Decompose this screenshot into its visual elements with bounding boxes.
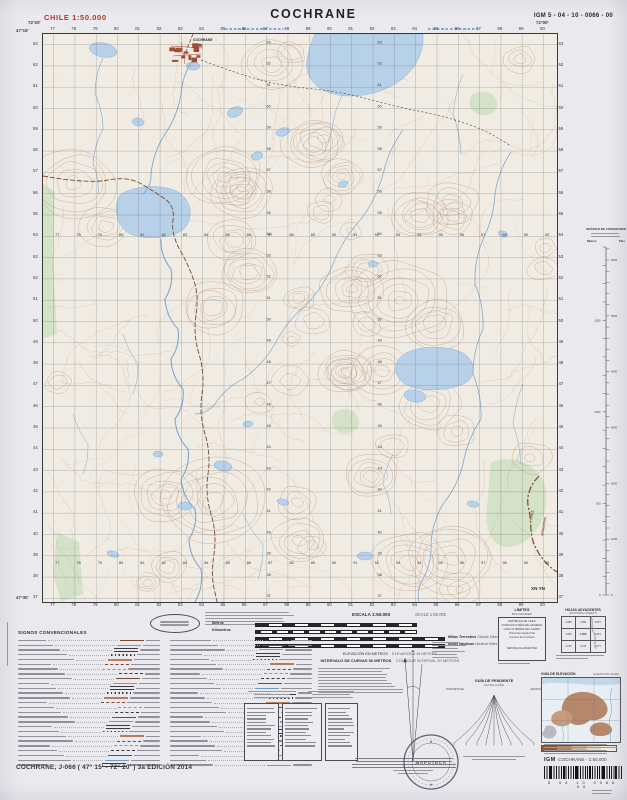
svg-text:COCHRANE: COCHRANE: [193, 38, 213, 42]
grid-number: 98: [497, 603, 502, 607]
grid-number: 43: [33, 468, 38, 472]
grid-number: 80: [114, 603, 119, 607]
svg-text:83: 83: [183, 561, 187, 565]
svg-text:39: 39: [267, 552, 271, 556]
svg-text:82: 82: [162, 233, 166, 237]
grid-number: 86: [242, 27, 247, 31]
grid-number: 80: [114, 27, 119, 31]
grid-number: 88: [284, 603, 289, 607]
grid-number: 46: [559, 404, 564, 408]
grid-number: 84: [199, 27, 204, 31]
grid-number: 87: [263, 27, 268, 31]
svg-text:✶: ✶: [411, 649, 415, 655]
grid-number: 86: [242, 603, 247, 607]
grid-number: 97: [476, 603, 481, 607]
grid-number: 93: [391, 603, 396, 607]
grid-number: 48: [559, 361, 564, 365]
grid-number: 39: [33, 553, 38, 557]
svg-text:59: 59: [267, 126, 271, 130]
svg-text:58: 58: [267, 147, 271, 151]
svg-text:★: ★: [429, 739, 433, 744]
grid-number: 00: [540, 603, 545, 607]
grid-number: 56: [33, 191, 38, 195]
grid-number: 57: [559, 169, 564, 173]
svg-text:39: 39: [378, 552, 382, 556]
svg-text:42: 42: [267, 488, 271, 492]
scale-bar-label: Kilómetros: [212, 629, 231, 633]
svg-text:86: 86: [247, 561, 251, 565]
svg-text:62: 62: [267, 62, 271, 66]
print-note: [592, 788, 620, 796]
info-table: [282, 703, 321, 761]
svg-text:89: 89: [311, 233, 315, 237]
svg-text:47: 47: [267, 381, 271, 385]
grid-number: 58: [559, 148, 564, 152]
grid-number: 85: [221, 27, 226, 31]
notes-right: [544, 742, 622, 756]
svg-text:81: 81: [140, 561, 144, 565]
grid-number: 59: [33, 127, 38, 131]
note-block: [246, 689, 298, 700]
svg-text:MAPOTECA: MAPOTECA: [415, 760, 446, 765]
grid-number: 90: [327, 27, 332, 31]
svg-text:4000: 4000: [611, 370, 618, 374]
svg-text:82: 82: [162, 561, 166, 565]
sheet-code: IGM 5 - 04 - 10 - 0066 - 00: [534, 13, 613, 19]
svg-text:91: 91: [353, 561, 357, 565]
grid-number: 97: [476, 27, 481, 31]
scale-bar-label: Metros: [212, 622, 224, 626]
grid-number: 95: [434, 603, 439, 607]
svg-text:43: 43: [267, 466, 271, 470]
svg-text:99: 99: [524, 233, 528, 237]
grid-number: 61: [559, 84, 564, 88]
grid-number: 72°00': [536, 21, 549, 25]
grid-number: 81: [135, 603, 140, 607]
product-line: IGM COCHRANE - 1:50.000: [544, 757, 607, 763]
svg-text:49: 49: [378, 339, 382, 343]
svg-text:★: ★: [429, 782, 433, 787]
info-table: [325, 703, 358, 761]
grid-number: 78: [71, 603, 76, 607]
svg-text:87: 87: [268, 561, 272, 565]
svg-text:50: 50: [378, 317, 382, 321]
adjoining-title-en: ADJOINING SHEETS: [556, 612, 610, 615]
grid-number: 96: [455, 27, 460, 31]
grid-number: 41: [33, 510, 38, 514]
grid-number: 62: [33, 63, 38, 67]
grid-number: 99: [519, 27, 524, 31]
svg-text:80: 80: [119, 561, 123, 565]
edition-line: COCHRANE, J-066 ( 47° 15' - 72° 20' ) 3a…: [16, 764, 192, 771]
svg-text:60: 60: [267, 104, 271, 108]
svg-text:81: 81: [140, 233, 144, 237]
grid-number: 79: [93, 27, 98, 31]
grid-number: 93: [391, 27, 396, 31]
svg-text:78: 78: [76, 233, 80, 237]
scale-label-es: ESCALA 1:50.000: [352, 612, 390, 617]
grid-number: 54: [33, 233, 38, 237]
grid-number: 44: [559, 446, 564, 450]
svg-text:1500: 1500: [594, 319, 601, 323]
svg-text:78: 78: [76, 561, 80, 565]
svg-text:00: 00: [545, 233, 549, 237]
grid-number: 82: [157, 603, 162, 607]
svg-text:48: 48: [378, 360, 382, 364]
svg-text:0: 0: [599, 593, 601, 597]
grid-note-blue: [225, 28, 283, 30]
meters-feet-ruler: 0500100015000100020003000400050006000: [586, 243, 626, 603]
grid-number: 49: [33, 340, 38, 344]
svg-text:79: 79: [98, 561, 102, 565]
limits-title-en: BOUNDARIES: [498, 613, 546, 617]
svg-text:85: 85: [226, 561, 230, 565]
chile-outline-overlay: [561, 616, 606, 649]
grid-number: 90: [327, 603, 332, 607]
scale-bar: [255, 623, 417, 627]
declination-notes: [432, 640, 468, 660]
grid-number: 43: [559, 468, 564, 472]
svg-text:90: 90: [332, 561, 336, 565]
svg-text:80: 80: [119, 233, 123, 237]
svg-text:37: 37: [378, 594, 382, 598]
svg-text:97: 97: [481, 561, 485, 565]
svg-text:1000: 1000: [594, 410, 601, 414]
svg-text:52: 52: [378, 275, 382, 279]
igm-abbrev: IGM: [544, 757, 556, 763]
grid-number: 89: [306, 603, 311, 607]
grid-number: 42: [33, 489, 38, 493]
svg-text:59: 59: [378, 126, 382, 130]
grid-number: 85: [221, 603, 226, 607]
conversion-chart: GRÁFICO DE CONVERSIÓN Metros Pies 050010…: [586, 228, 626, 608]
topographic-map: CHILEARGENTINACOCHRANEXN YN6362616059585…: [43, 34, 557, 602]
svg-text:87: 87: [268, 233, 272, 237]
svg-text:40: 40: [267, 530, 271, 534]
svg-text:62: 62: [378, 62, 382, 66]
grid-number: 42: [559, 489, 564, 493]
elevation-guide-map: [541, 677, 621, 743]
coordinate-tables: [244, 703, 358, 763]
svg-text:92: 92: [375, 561, 379, 565]
grid-number: 92: [370, 603, 375, 607]
grid-number: 91: [348, 603, 353, 607]
grid-number: 52: [33, 276, 38, 280]
svg-text:57: 57: [378, 168, 382, 172]
grid-number: 91: [348, 27, 353, 31]
grid-number: 98: [497, 27, 502, 31]
grid-number: 58: [33, 148, 38, 152]
svg-text:500: 500: [596, 502, 601, 506]
svg-text:99: 99: [524, 561, 528, 565]
svg-text:00: 00: [545, 561, 549, 565]
grid-number: 40: [33, 532, 38, 536]
grid-number: 83: [178, 27, 183, 31]
svg-text:91: 91: [353, 233, 357, 237]
svg-text:56: 56: [267, 190, 271, 194]
grid-number: 57: [33, 169, 38, 173]
mapoteca-stamp: MAPOTECA★★: [400, 731, 462, 793]
svg-text:97: 97: [481, 233, 485, 237]
svg-text:53: 53: [267, 253, 271, 257]
svg-text:41: 41: [267, 509, 271, 513]
grid-number: 62: [559, 63, 564, 67]
grid-number: 87: [263, 603, 268, 607]
svg-text:51: 51: [267, 296, 271, 300]
grid-number: 39: [559, 553, 564, 557]
grid-number: 89: [306, 27, 311, 31]
grid-number: 52: [559, 276, 564, 280]
svg-text:88: 88: [289, 233, 293, 237]
slope-guide-title-en: SLOPE GUIDE: [446, 684, 542, 688]
svg-text:6000: 6000: [611, 258, 618, 262]
scale-label-en: SCALE 1:50.000: [415, 612, 446, 617]
grid-number: 47°30': [16, 596, 29, 600]
grid-number: 56: [559, 191, 564, 195]
svg-text:57: 57: [267, 168, 271, 172]
svg-text:61: 61: [267, 83, 271, 87]
svg-text:45: 45: [378, 424, 382, 428]
grid-number: 84: [199, 603, 204, 607]
conventional-signs-title: SIGNOS CONVENCIONALES: [18, 630, 87, 635]
grid-number: 54: [559, 233, 564, 237]
svg-text:51: 51: [378, 296, 382, 300]
svg-text:98: 98: [502, 561, 506, 565]
svg-text:96: 96: [460, 561, 464, 565]
svg-text:90: 90: [332, 233, 336, 237]
grid-number: 48: [33, 361, 38, 365]
svg-text:96: 96: [460, 233, 464, 237]
svg-text:55: 55: [267, 211, 271, 215]
igm-logo: [150, 614, 200, 633]
grid-number: 79: [93, 603, 98, 607]
grid-number: 37: [33, 595, 38, 599]
elev-guide-title-es: GUÍA DE ELEVACIÓN: [541, 672, 575, 676]
grid-number: 41: [559, 510, 564, 514]
svg-text:93: 93: [396, 233, 400, 237]
grid-number: 77: [50, 603, 55, 607]
grid-number: 40: [559, 532, 564, 536]
svg-text:44: 44: [378, 445, 382, 449]
barcode: [544, 766, 622, 779]
svg-text:42: 42: [378, 488, 382, 492]
boundary-line: REPÚBLICA ARGENTINA: [499, 648, 545, 651]
svg-text:46: 46: [267, 403, 271, 407]
product-name: COCHRANE - 1:50.000: [558, 757, 606, 762]
svg-text:52: 52: [267, 275, 271, 279]
grid-number: 50: [559, 319, 564, 323]
svg-text:5000: 5000: [611, 314, 618, 318]
svg-text:56: 56: [378, 190, 382, 194]
grid-number: 77: [50, 27, 55, 31]
grid-number: 51: [33, 297, 38, 301]
svg-text:37: 37: [267, 594, 271, 598]
svg-text:55: 55: [378, 211, 382, 215]
svg-text:95: 95: [439, 233, 443, 237]
scale-bar: [255, 630, 417, 634]
grid-number: 00: [540, 27, 545, 31]
info-table: [244, 703, 279, 761]
svg-text:3000: 3000: [611, 426, 618, 430]
svg-text:92: 92: [375, 233, 379, 237]
grid-number: 51: [559, 297, 564, 301]
svg-text:46: 46: [378, 403, 382, 407]
svg-text:60: 60: [378, 104, 382, 108]
svg-text:95: 95: [439, 561, 443, 565]
grid-number: 46: [33, 404, 38, 408]
svg-text:58: 58: [378, 147, 382, 151]
svg-text:63: 63: [267, 40, 271, 44]
grid-number: 95: [434, 27, 439, 31]
grid-number: 72°20': [28, 21, 41, 25]
grid-number: 88: [284, 27, 289, 31]
svg-text:77: 77: [55, 561, 59, 565]
svg-text:84: 84: [204, 561, 208, 565]
note-block: [305, 689, 357, 700]
svg-text:41: 41: [378, 509, 382, 513]
elev-guide-title-en: ELEVATION GUIDE: [593, 672, 619, 676]
grid-number: 59: [559, 127, 564, 131]
svg-text:1000: 1000: [611, 538, 618, 542]
grid-number: 49: [559, 340, 564, 344]
svg-text:89: 89: [311, 561, 315, 565]
conversion-title: GRÁFICO DE CONVERSIÓN: [586, 228, 626, 231]
grid-number: 63: [559, 42, 564, 46]
svg-text:48: 48: [267, 360, 271, 364]
svg-text:77: 77: [55, 233, 59, 237]
grid-number: 94: [412, 27, 417, 31]
grid-number: 92: [370, 27, 375, 31]
svg-text:93: 93: [396, 561, 400, 565]
svg-text:85: 85: [226, 233, 230, 237]
map-sheet-page: CHILE 1:50.000 COCHRANE IGM 5 - 04 - 10 …: [0, 0, 627, 800]
svg-text:49: 49: [267, 339, 271, 343]
svg-text:XN YN: XN YN: [531, 586, 546, 591]
grid-number: 96: [455, 603, 460, 607]
elevation-es: ELEVACIÓN EN METROS: [343, 652, 388, 656]
grid-number: 81: [135, 27, 140, 31]
grid-number: 63: [33, 42, 38, 46]
elevation-guide: GUÍA DE ELEVACIÓN ELEVATION GUIDE: [541, 672, 619, 752]
grid-number: 53: [33, 255, 38, 259]
svg-text:43: 43: [378, 466, 382, 470]
grid-number: 47: [33, 382, 38, 386]
svg-text:38: 38: [267, 573, 271, 577]
svg-text:45: 45: [267, 424, 271, 428]
grid-number: 45: [33, 425, 38, 429]
grid-number: 99: [519, 603, 524, 607]
svg-text:53: 53: [378, 253, 382, 257]
boundary-line: Comuna de Cochrane: [499, 637, 545, 640]
grid-number: 44: [33, 446, 38, 450]
grid-number: 38: [33, 574, 38, 578]
svg-text:86: 86: [247, 233, 251, 237]
svg-text:88: 88: [289, 561, 293, 565]
grid-number: 50: [33, 319, 38, 323]
map-canvas[interactable]: CHILEARGENTINACOCHRANEXN YN6362616059585…: [42, 33, 558, 603]
svg-text:47: 47: [378, 381, 382, 385]
grid-number: 82: [157, 27, 162, 31]
grid-number: 61: [33, 84, 38, 88]
grid-number: 45: [559, 425, 564, 429]
grid-number: 38: [559, 574, 564, 578]
svg-text:83: 83: [183, 233, 187, 237]
svg-text:50: 50: [267, 317, 271, 321]
svg-text:94: 94: [417, 233, 421, 237]
svg-text:79: 79: [98, 233, 102, 237]
left-margin-vertical-note: [6, 622, 11, 692]
grid-number: 60: [33, 106, 38, 110]
svg-text:63: 63: [378, 40, 382, 44]
boundaries-box: LÍMITES BOUNDARIES REPÚBLICA DE CHILEXI …: [498, 608, 546, 666]
svg-text:44: 44: [267, 445, 271, 449]
adjoining-sheets: HOJAS ADYACENTES ADJOINING SHEETS J-055J…: [556, 608, 610, 661]
svg-text:94: 94: [417, 561, 421, 565]
svg-text:2000: 2000: [611, 482, 618, 486]
grid-number: 47: [559, 382, 564, 386]
svg-text:0: 0: [611, 593, 613, 597]
grid-number: 78: [71, 27, 76, 31]
grid-number: 83: [178, 603, 183, 607]
grid-number: 55: [33, 212, 38, 216]
grid-number: 60: [559, 106, 564, 110]
svg-text:98: 98: [502, 233, 506, 237]
grid-number: 55: [559, 212, 564, 216]
svg-text:61: 61: [378, 83, 382, 87]
grid-number: 47°15': [16, 29, 29, 33]
svg-text:40: 40: [378, 530, 382, 534]
grid-number: 37: [559, 595, 564, 599]
grid-number: 53: [559, 255, 564, 259]
interval-es: INTERVALO DE CURVAS 50 METROS: [321, 658, 392, 663]
svg-text:38: 38: [378, 573, 382, 577]
grid-number: 94: [412, 603, 417, 607]
svg-text:84: 84: [204, 233, 208, 237]
